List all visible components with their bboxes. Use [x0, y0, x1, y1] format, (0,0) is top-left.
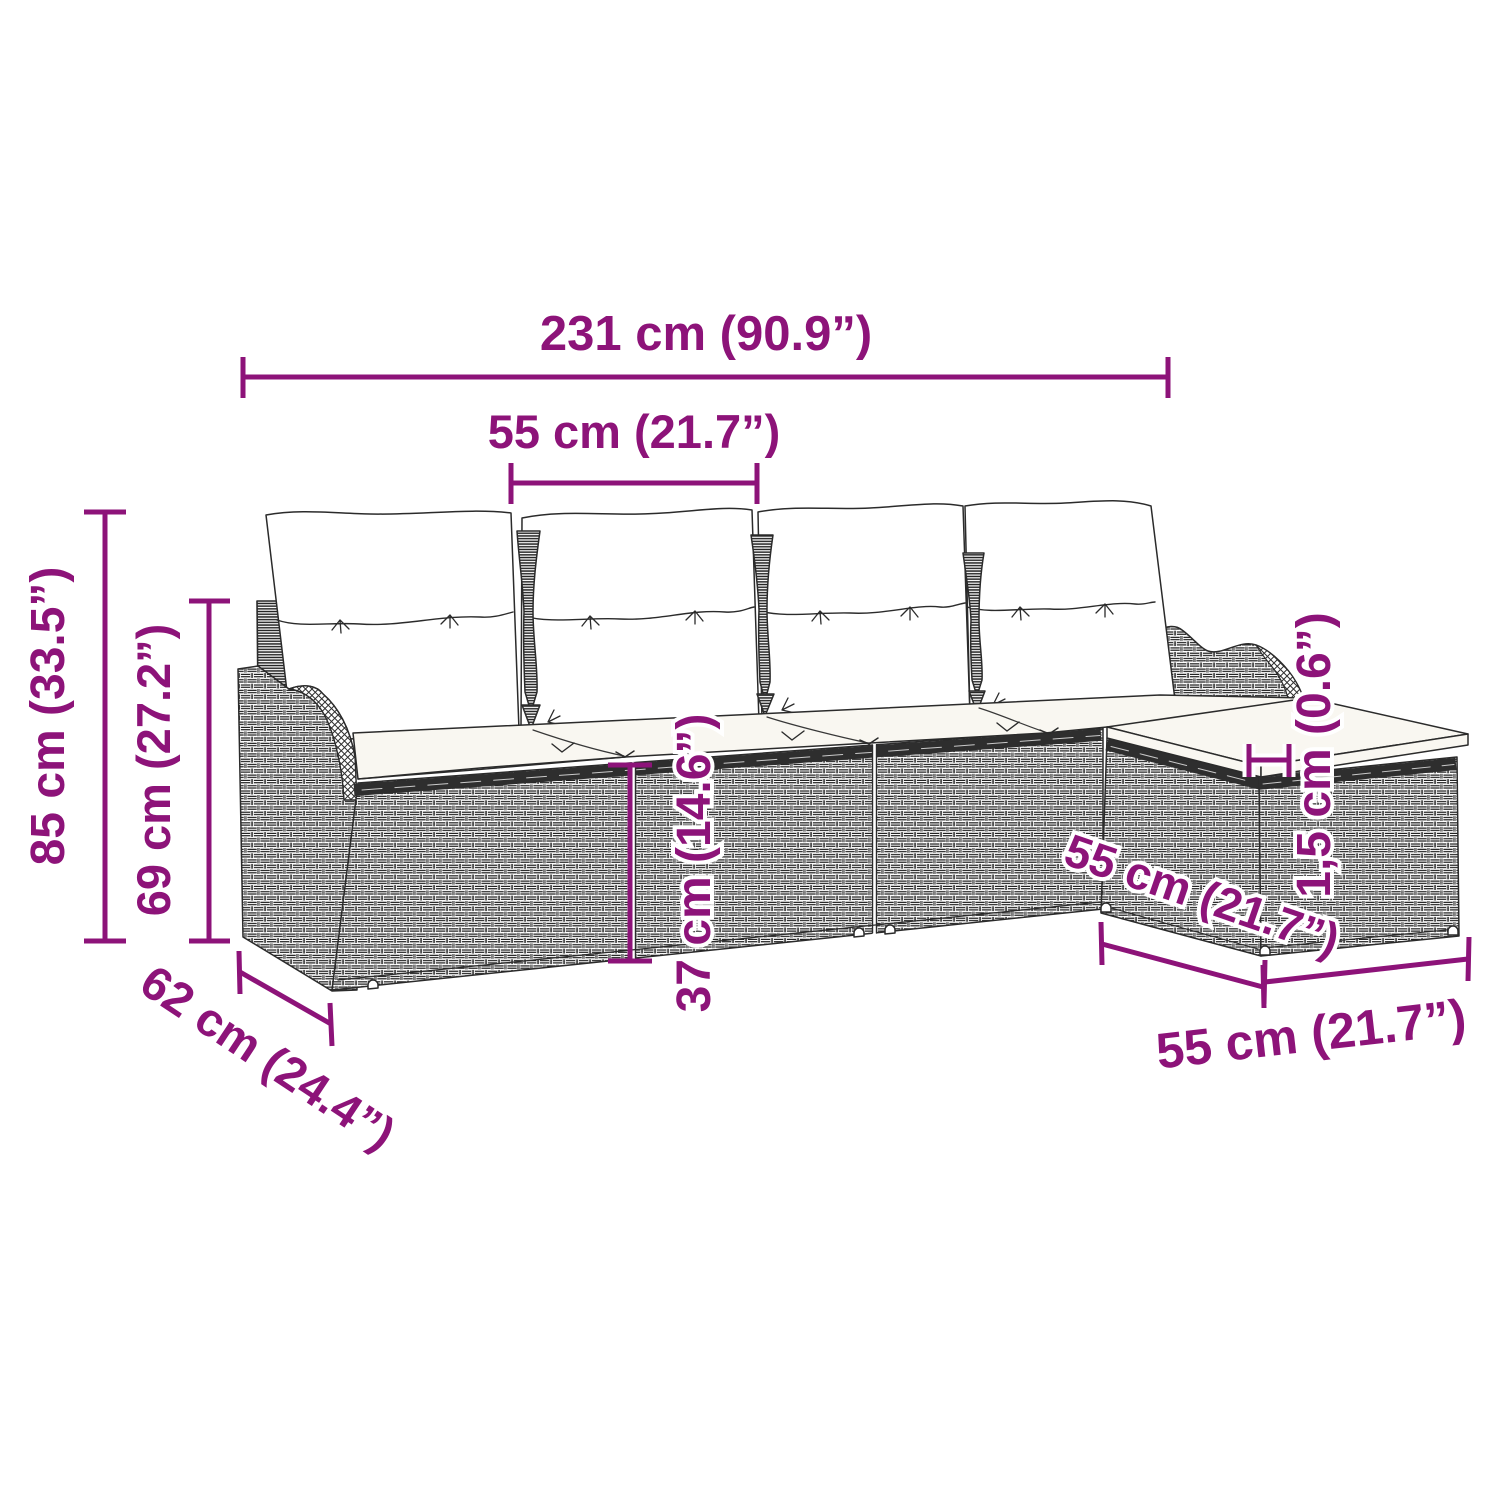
svg-text:85 cm (33.5”): 85 cm (33.5”) — [22, 567, 75, 866]
svg-text:1,5 cm (0.6”): 1,5 cm (0.6”) — [1288, 612, 1341, 897]
svg-text:55 cm (21.7”): 55 cm (21.7”) — [488, 405, 781, 458]
svg-text:69 cm (27.2”): 69 cm (27.2”) — [127, 624, 180, 917]
svg-text:231 cm (90.9”): 231 cm (90.9”) — [540, 307, 872, 361]
svg-text:37 cm (14.6”): 37 cm (14.6”) — [668, 714, 721, 1013]
